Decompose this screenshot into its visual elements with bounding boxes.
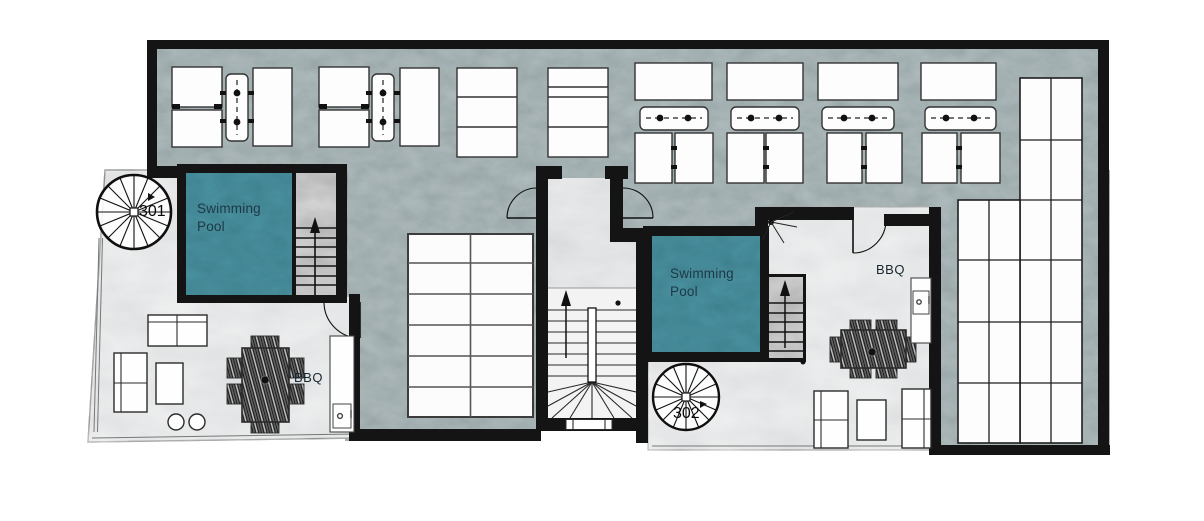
swimming-pool-302	[652, 236, 760, 352]
skylight-grid	[408, 234, 533, 417]
spiral-staircase-301-icon	[97, 175, 171, 249]
sofa	[114, 353, 147, 412]
pool-stairs-301	[292, 173, 336, 299]
spiral-staircase-302-icon	[653, 364, 719, 430]
sofa	[148, 315, 207, 346]
swimming-pool-301	[186, 173, 292, 295]
floor-plan: Swimming Pool Swimming Pool BBQ BBQ 301 …	[0, 0, 1204, 521]
pool-stairs-302	[769, 277, 806, 365]
pouf	[189, 414, 205, 430]
bbq-counter	[330, 336, 354, 432]
sofa	[814, 391, 848, 448]
coffee-table	[857, 400, 886, 440]
coffee-table	[156, 363, 183, 404]
bbq-counter	[911, 278, 931, 343]
sofa	[902, 389, 931, 448]
hall-bottom-window	[566, 420, 612, 430]
pouf	[168, 414, 184, 430]
